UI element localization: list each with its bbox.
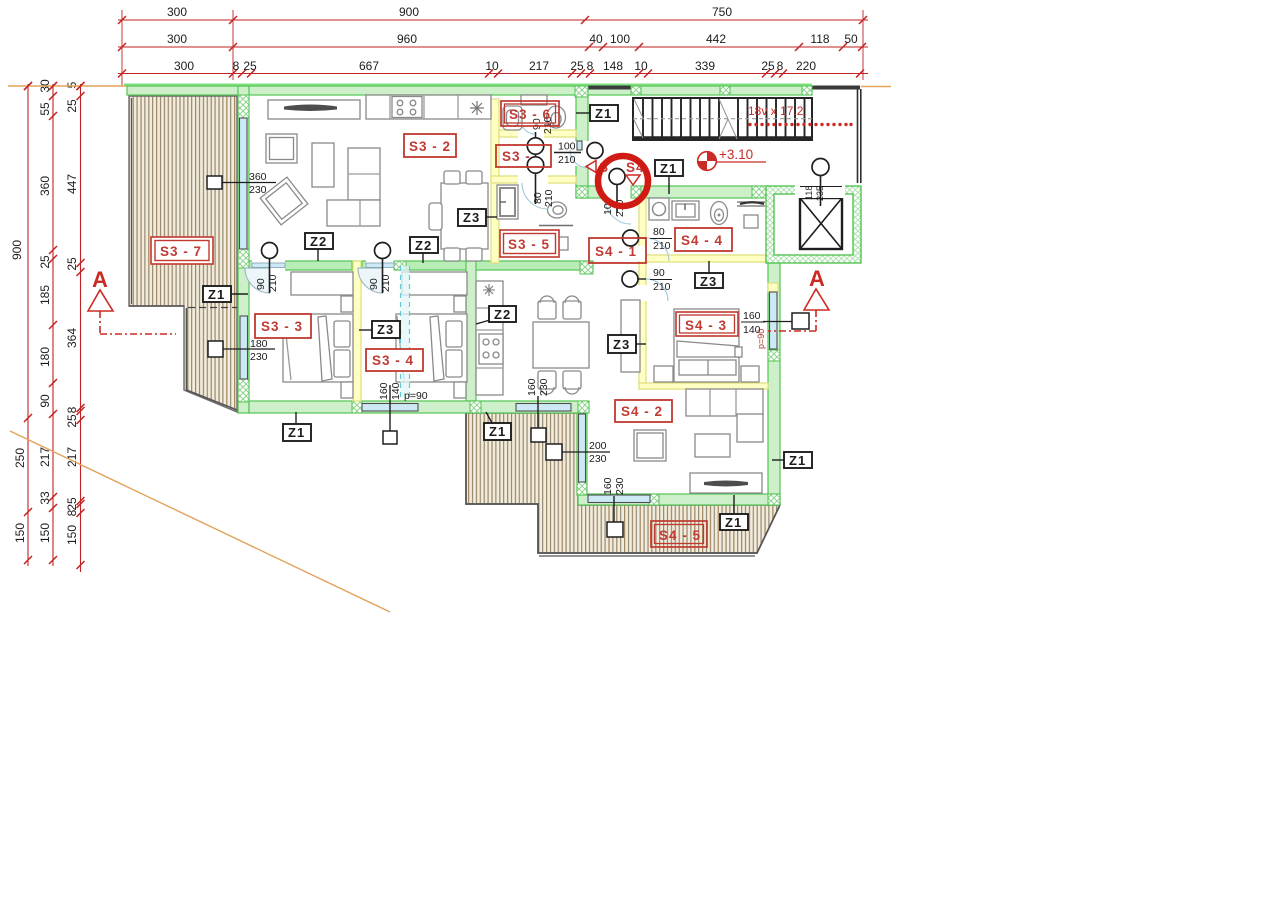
svg-text:Z2: Z2: [415, 238, 432, 253]
svg-text:960: 960: [397, 32, 417, 46]
svg-text:S4 - 4: S4 - 4: [681, 233, 723, 248]
svg-text:900: 900: [10, 240, 24, 260]
svg-text:S3 - 5: S3 - 5: [508, 237, 550, 252]
svg-text:210: 210: [267, 274, 279, 292]
svg-text:140: 140: [390, 382, 402, 400]
svg-text:230: 230: [249, 184, 267, 196]
svg-text:100: 100: [558, 141, 576, 153]
svg-text:50: 50: [844, 32, 858, 46]
svg-text:S3 - 6: S3 - 6: [509, 107, 551, 122]
svg-text:S4 - 3: S4 - 3: [685, 318, 727, 333]
svg-text:S3 -: S3 -: [502, 149, 531, 164]
svg-text:160: 160: [602, 477, 614, 495]
svg-text:S3 - 3: S3 - 3: [261, 319, 303, 334]
svg-text:10: 10: [634, 59, 648, 73]
svg-text:25: 25: [65, 414, 79, 428]
svg-text:667: 667: [359, 59, 379, 73]
svg-text:S3 - 2: S3 - 2: [409, 139, 451, 154]
svg-text:230: 230: [538, 378, 550, 396]
svg-text:Z1: Z1: [725, 515, 742, 530]
svg-text:5: 5: [65, 81, 79, 88]
svg-text:148: 148: [603, 59, 623, 73]
svg-text:10: 10: [485, 59, 499, 73]
svg-text:210: 210: [380, 274, 392, 292]
svg-text:150: 150: [13, 523, 27, 543]
svg-text:442: 442: [706, 32, 726, 46]
svg-text:90: 90: [653, 267, 665, 279]
svg-text:217: 217: [65, 447, 79, 467]
svg-text:300: 300: [167, 32, 187, 46]
svg-text:160: 160: [378, 382, 390, 400]
svg-text:90: 90: [255, 278, 267, 290]
svg-text:100: 100: [610, 32, 630, 46]
svg-text:8: 8: [587, 59, 594, 73]
svg-text:25: 25: [761, 59, 775, 73]
svg-text:180: 180: [38, 347, 52, 367]
svg-text:25: 25: [65, 99, 79, 113]
svg-text:364: 364: [65, 328, 79, 348]
svg-text:8: 8: [777, 59, 784, 73]
svg-text:8: 8: [233, 59, 240, 73]
svg-text:360: 360: [38, 176, 52, 196]
svg-text:80: 80: [653, 226, 665, 238]
svg-text:S4 - 5: S4 - 5: [659, 528, 701, 543]
svg-text:150: 150: [65, 525, 79, 545]
svg-text:180: 180: [250, 338, 268, 350]
svg-text:230: 230: [250, 351, 268, 363]
svg-text:Z3: Z3: [377, 322, 394, 337]
svg-text:A: A: [92, 267, 108, 292]
svg-text:A: A: [809, 266, 825, 291]
svg-text:Z2: Z2: [310, 234, 327, 249]
svg-text:750: 750: [712, 5, 732, 19]
svg-text:300: 300: [174, 59, 194, 73]
svg-text:40: 40: [589, 32, 603, 46]
svg-text:25: 25: [65, 257, 79, 271]
svg-text:235: 235: [815, 186, 825, 201]
svg-text:300: 300: [167, 5, 187, 19]
svg-text:Z3: Z3: [613, 337, 630, 352]
svg-text:S4 - 2: S4 - 2: [621, 404, 663, 419]
svg-text:Z3: Z3: [463, 210, 480, 225]
svg-text:p=90: p=90: [404, 390, 428, 402]
svg-text:18v x 17.2: 18v x 17.2: [748, 104, 804, 118]
svg-text:220: 220: [796, 59, 816, 73]
svg-text:Z1: Z1: [660, 161, 677, 176]
svg-text:200: 200: [589, 440, 607, 452]
svg-text:p=90: p=90: [756, 329, 766, 349]
svg-text:210: 210: [653, 281, 671, 293]
svg-text:33: 33: [38, 491, 52, 505]
svg-text:Z1: Z1: [789, 453, 806, 468]
svg-text:900: 900: [399, 5, 419, 19]
svg-text:210: 210: [558, 154, 576, 166]
svg-text:230: 230: [589, 453, 607, 465]
svg-text:Z2: Z2: [494, 307, 511, 322]
svg-text:S3 - 4: S3 - 4: [372, 353, 414, 368]
svg-text:160: 160: [743, 310, 761, 322]
svg-text:55: 55: [38, 102, 52, 116]
svg-text:217: 217: [529, 59, 549, 73]
svg-text:8: 8: [65, 406, 79, 413]
svg-text:25: 25: [243, 59, 257, 73]
svg-text:Z1: Z1: [288, 425, 305, 440]
svg-text:90: 90: [368, 278, 380, 290]
svg-text:210: 210: [653, 240, 671, 252]
svg-text:25: 25: [65, 497, 79, 511]
svg-text:360: 360: [249, 171, 267, 183]
svg-text:150: 150: [38, 523, 52, 543]
svg-text:185: 185: [38, 285, 52, 305]
svg-text:90: 90: [38, 394, 52, 408]
svg-text:S3 - 7: S3 - 7: [160, 244, 202, 259]
svg-text:25: 25: [38, 255, 52, 269]
svg-text:Z3: Z3: [700, 274, 717, 289]
svg-text:230: 230: [614, 477, 626, 495]
svg-text:+3.10: +3.10: [719, 147, 753, 162]
svg-text:210: 210: [543, 189, 555, 207]
svg-text:S4 - 1: S4 - 1: [595, 244, 637, 259]
svg-text:250: 250: [13, 448, 27, 468]
svg-text:8: 8: [65, 509, 79, 516]
svg-text:447: 447: [65, 174, 79, 194]
svg-text:160: 160: [526, 378, 538, 396]
svg-text:118: 118: [810, 32, 829, 46]
svg-text:25: 25: [570, 59, 584, 73]
svg-text:Z1: Z1: [489, 424, 506, 439]
svg-text:Z1: Z1: [208, 287, 225, 302]
svg-text:118: 118: [804, 186, 814, 200]
svg-text:339: 339: [695, 59, 715, 73]
svg-text:Z1: Z1: [595, 106, 612, 121]
